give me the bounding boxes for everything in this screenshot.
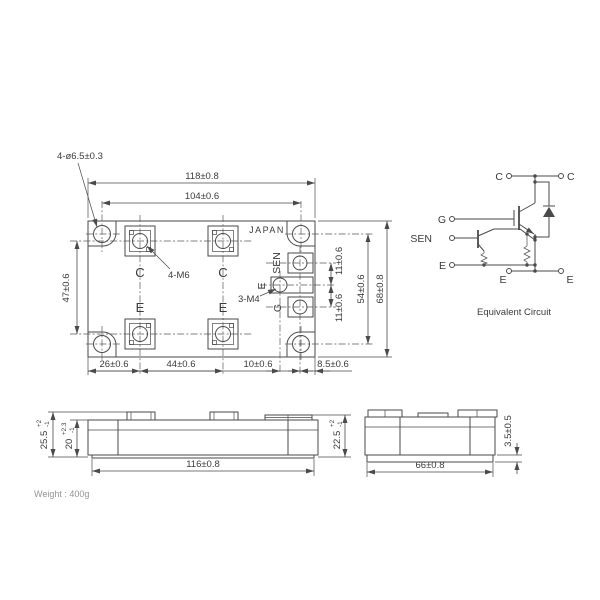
svg-text:68±0.8: 68±0.8 bbox=[375, 275, 386, 304]
dim-height-68: 68±0.8 bbox=[318, 221, 392, 357]
front-dim-total-height: 25.5 +2 -1 bbox=[36, 412, 127, 457]
equivalent-circuit: C C G bbox=[410, 171, 575, 318]
svg-text:8.5±0.6: 8.5±0.6 bbox=[317, 359, 349, 370]
circuit-caption: Equivalent Circuit bbox=[477, 307, 551, 318]
label-c1: C bbox=[135, 265, 144, 280]
svg-text:+2: +2 bbox=[329, 419, 336, 427]
svg-text:+2: +2 bbox=[36, 419, 43, 427]
label-e-aux: E bbox=[256, 282, 268, 289]
circuit-sen: SEN bbox=[410, 233, 432, 245]
svg-text:-1: -1 bbox=[44, 421, 51, 427]
front-baseplate bbox=[92, 455, 314, 458]
circuit-c-right: C bbox=[567, 171, 575, 183]
sense-resistor-1 bbox=[481, 251, 487, 267]
side-dim-flange: 3.5±0.5 bbox=[495, 415, 522, 474]
label-japan: JAPAN bbox=[249, 225, 285, 235]
module-outline bbox=[88, 221, 315, 357]
svg-text:54±0.6: 54±0.6 bbox=[356, 275, 367, 304]
svg-text:25.5: 25.5 bbox=[39, 431, 50, 450]
main-screw-note: 4-M6 bbox=[168, 270, 190, 281]
front-view: 25.5 +2 -1 20 +2.3 -1 116±0.8 22 bbox=[36, 412, 351, 476]
diode-symbol bbox=[533, 180, 555, 238]
svg-text:3.5±0.5: 3.5±0.5 bbox=[503, 415, 514, 447]
front-body bbox=[88, 420, 318, 455]
dim-bottom-row: 26±0.6 44±0.6 10±0.6 8.5±0.6 bbox=[88, 357, 352, 375]
weight-note: Weight : 400g bbox=[34, 489, 89, 499]
svg-text:10±0.6: 10±0.6 bbox=[244, 359, 273, 370]
sense-resistor-2 bbox=[524, 232, 530, 266]
svg-text:116±0.8: 116±0.8 bbox=[186, 459, 220, 470]
dim-hole-span-104: 104±0.6 bbox=[102, 191, 301, 203]
svg-text:44±0.6: 44±0.6 bbox=[167, 359, 196, 370]
terminal-centerlines bbox=[70, 215, 336, 374]
front-dim-case-height: 20 +2.3 -1 bbox=[61, 420, 88, 457]
dim-right-hole-span-54: 54±0.6 bbox=[356, 234, 368, 344]
dim-aux-pitch: 11±0.6 11±0.6 bbox=[331, 247, 345, 322]
hole-note-leader bbox=[78, 163, 97, 227]
svg-text:104±0.6: 104±0.6 bbox=[185, 191, 219, 202]
side-terminal-bumps bbox=[368, 410, 497, 417]
svg-text:11±0.6: 11±0.6 bbox=[334, 294, 345, 322]
side-dim-width: 66±0.8 bbox=[367, 460, 493, 477]
main-screw-leader bbox=[147, 246, 170, 269]
circuit-g: G bbox=[438, 214, 446, 226]
svg-text:-1: -1 bbox=[337, 421, 344, 427]
svg-text:+2.3: +2.3 bbox=[61, 422, 68, 435]
label-sen: SEN bbox=[271, 252, 283, 274]
drawing-svg: C C E E JAPAN SEN E G 4-ø6.5±0.3 4-M6 3-… bbox=[0, 0, 600, 600]
top-view: C C E E JAPAN SEN E G 4-ø6.5±0.3 4-M6 3-… bbox=[57, 151, 392, 375]
circuit-e-left: E bbox=[439, 260, 446, 272]
side-view: 66±0.8 3.5±0.5 bbox=[365, 410, 522, 477]
hole-note: 4-ø6.5±0.3 bbox=[57, 151, 103, 162]
label-c2: C bbox=[218, 265, 227, 280]
label-g: G bbox=[272, 304, 284, 312]
svg-text:118±0.8: 118±0.8 bbox=[185, 171, 219, 182]
dim-terminal-row-span-47: 47±0.6 bbox=[61, 241, 77, 334]
label-e2: E bbox=[219, 300, 228, 315]
svg-text:20: 20 bbox=[64, 439, 75, 450]
aux-screw-note: 3-M4 bbox=[238, 294, 260, 305]
front-terminal-bumps bbox=[127, 412, 312, 420]
svg-text:22.5: 22.5 bbox=[332, 431, 343, 450]
svg-text:-1: -1 bbox=[69, 427, 76, 433]
circuit-e-bottom-left: E bbox=[499, 274, 506, 286]
sense-transistor bbox=[450, 229, 537, 251]
front-dim-base-width: 116±0.8 bbox=[92, 459, 314, 476]
svg-text:11±0.6: 11±0.6 bbox=[334, 247, 345, 275]
circuit-c-left: C bbox=[495, 171, 503, 183]
svg-text:26±0.6: 26±0.6 bbox=[100, 359, 129, 370]
engineering-drawing-page: C C E E JAPAN SEN E G 4-ø6.5±0.3 4-M6 3-… bbox=[0, 0, 600, 600]
side-body bbox=[365, 417, 495, 455]
label-e1: E bbox=[136, 300, 145, 315]
circuit-e-bottom-right: E bbox=[566, 274, 573, 286]
svg-text:66±0.8: 66±0.8 bbox=[416, 460, 445, 471]
svg-text:47±0.6: 47±0.6 bbox=[61, 274, 72, 303]
